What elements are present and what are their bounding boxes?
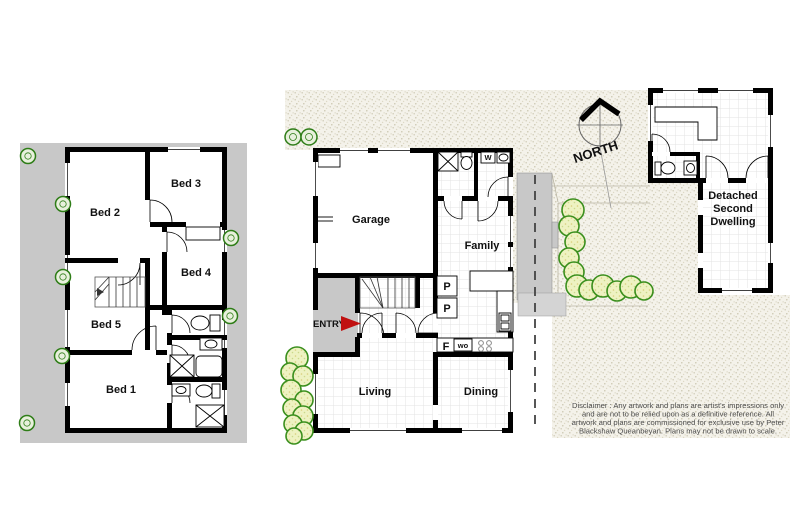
entry-label: ENTRY [313,319,346,330]
ground-floor-plan: W P P F wo ENTRY Garage Family [313,148,513,433]
room-label-bed4: Bed 4 [181,267,212,279]
deck-landing [518,293,566,316]
wc-toilet-icon [191,315,220,331]
hedge-left-of-living [281,347,313,444]
tree-icon [56,197,71,212]
room-label-bed1: Bed 1 [106,384,136,396]
dwelling-label-3: Dwelling [710,216,755,228]
pantry-label-2: P [443,303,450,315]
tree-icon [20,416,35,431]
washer-label: W [484,153,492,162]
wall-oven-label: wo [457,341,469,350]
room-label-bed2: Bed 2 [90,207,120,219]
room-label-bed5: Bed 5 [91,319,121,331]
room-label-bed3: Bed 3 [171,178,201,190]
floorplan-svg: Bed 2 Bed 3 Bed 4 Bed 5 Bed 1 [0,0,790,527]
tree-icon [56,270,71,285]
floorplan-page: Bed 2 Bed 3 Bed 4 Bed 5 Bed 1 [0,0,790,527]
fridge-label: F [443,341,450,353]
robe [186,227,220,240]
entry-porch [313,278,358,352]
room-label-family: Family [465,240,501,252]
upper-floor-plan: Bed 2 Bed 3 Bed 4 Bed 5 Bed 1 [20,143,247,443]
pantry-label-1: P [443,281,450,293]
kitchen-island [470,271,513,291]
room-label-garage: Garage [352,214,390,226]
tree-icon [21,149,36,164]
tree-icon [285,129,301,145]
dwelling-label-2: Second [713,203,753,215]
tree-icon [224,231,239,246]
tree-icon [223,309,238,324]
disclaimer-line-4: Blackshaw Queanbeyan. Plans may not be d… [579,427,777,436]
room-label-living: Living [359,386,391,398]
room-label-dining: Dining [464,386,498,398]
dwelling-label-1: Detached [708,190,758,202]
tree-icon [301,129,317,145]
disclaimer: Disclaimer : Any artwork and plans are a… [572,401,785,436]
tree-icon [55,349,70,364]
